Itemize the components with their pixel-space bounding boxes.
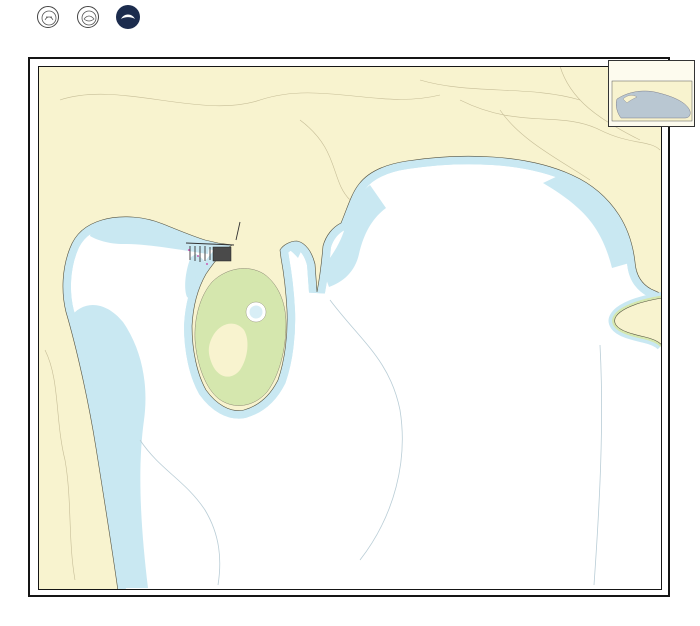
nautical-chart-page xyxy=(0,0,700,626)
chart-annotations xyxy=(0,0,700,626)
